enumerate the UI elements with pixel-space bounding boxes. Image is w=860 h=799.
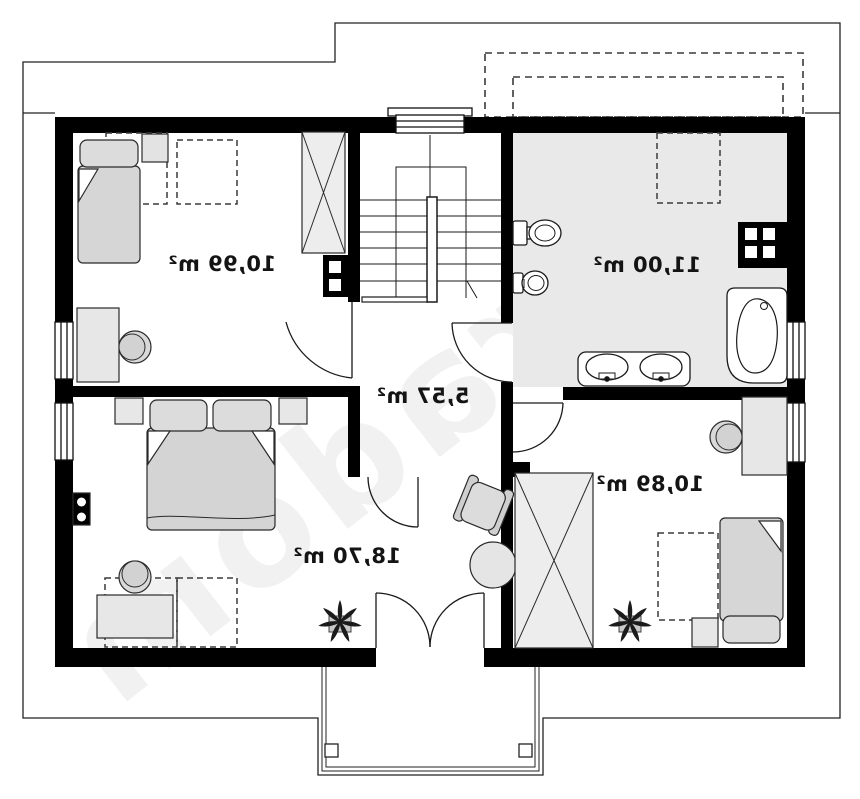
single-bed [720,518,783,643]
desk [77,308,119,382]
wall-bedroom-divider [73,386,360,397]
nightstand [279,398,307,424]
corner-bathtub [727,288,787,383]
door-bedroom-right [513,403,563,452]
nightstand [692,618,718,647]
door-balcony-french [376,593,484,648]
plant [608,600,652,643]
stair-railing-bottom [362,297,427,302]
wardrobe [302,132,345,253]
plant [318,600,362,643]
window-left-2 [55,403,73,460]
roof-window-outline [485,53,803,117]
desk [97,595,173,638]
floor-plan: extradom [0,0,860,799]
window-stairs-top [388,108,472,133]
bedroom-top-left-furniture [77,132,345,382]
wardrobe [515,473,593,648]
toilet [513,220,561,246]
wall-bath-left [501,133,513,323]
nightstand [142,134,168,162]
door-bedroom-top-left [286,302,352,378]
wall-hall-main [348,397,360,477]
power-socket-box [73,493,90,525]
chair [119,331,151,363]
chair [119,561,151,593]
chimney-left [323,255,360,297]
stair-railing [427,197,437,302]
bedroom-main-furniture [73,398,516,638]
staircase [360,135,501,302]
nightstand [115,398,143,424]
single-bed [78,140,140,263]
round-table [470,542,516,588]
bedroom-right-furniture [515,397,787,648]
balcony [322,665,539,771]
window-bathroom [787,322,805,379]
exterior-wall-right [787,117,805,667]
door-opening-bedroom-right [513,387,563,400]
floor-plan-drawing [0,0,860,799]
door-bathroom [452,323,512,382]
exterior-wall-left [55,117,73,667]
chair [710,421,742,453]
double-bed [147,400,275,530]
door-bedroom-main [368,477,418,527]
wall-room-right-left [501,400,513,648]
door-opening-balcony [376,648,484,667]
bidet [513,271,548,295]
window-left-1 [55,322,73,379]
double-washbasin [578,352,690,386]
desk [742,397,787,475]
window-bedroom-right [787,403,805,462]
